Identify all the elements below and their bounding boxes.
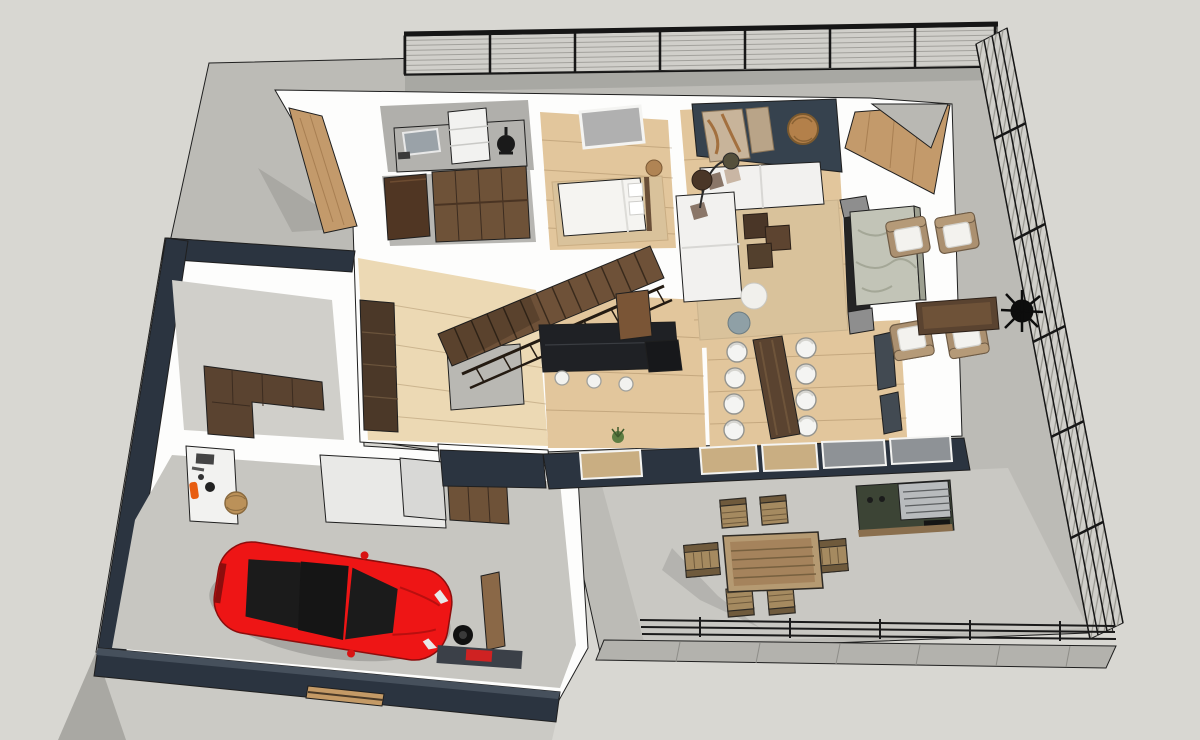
dining-chair[interactable] (796, 364, 816, 384)
lounge-chair[interactable] (934, 212, 980, 254)
bar-stool[interactable] (555, 371, 569, 385)
refrigerator[interactable] (400, 458, 446, 520)
outdoor-dining-chair[interactable] (760, 495, 788, 525)
east-window (880, 392, 902, 434)
facade-door[interactable] (580, 450, 642, 479)
pillow (628, 183, 643, 197)
wall-clock[interactable] (497, 135, 515, 153)
open-door[interactable] (616, 290, 652, 340)
dining-chair[interactable] (724, 394, 744, 414)
mirror[interactable] (403, 129, 440, 155)
side-table[interactable] (646, 160, 662, 176)
washer-cabinet[interactable] (448, 108, 490, 164)
floorplan-3d-scene[interactable] (0, 0, 1200, 740)
outdoor-dining-armchair[interactable] (684, 543, 721, 578)
bar-stool[interactable] (587, 374, 601, 388)
outdoor-dining-table[interactable] (723, 532, 823, 592)
pillow (629, 201, 644, 215)
double-bed[interactable] (558, 177, 652, 236)
pouf-gray[interactable] (728, 312, 750, 334)
mudroom-floor (172, 280, 344, 440)
round-side-table[interactable] (692, 170, 712, 190)
bedroom-window (580, 106, 644, 148)
wall-art[interactable] (702, 109, 750, 162)
facade-glass (822, 440, 886, 468)
dining-chair[interactable] (724, 420, 744, 440)
pouf-white[interactable] (741, 283, 767, 309)
dining-chair[interactable] (725, 368, 745, 388)
facade-glass (700, 445, 758, 474)
closet-door[interactable] (384, 174, 430, 240)
tall-appliance[interactable] (645, 340, 682, 372)
render-viewport[interactable]: { "scene": { "type": "3d-floorplan-rende… (0, 0, 1200, 740)
facade-glass (890, 436, 952, 464)
bbq-grill[interactable] (856, 480, 954, 537)
facade-glass (762, 443, 818, 471)
lounge-chair[interactable] (885, 216, 931, 258)
dining-chair[interactable] (727, 342, 747, 362)
slat-fence-top (404, 24, 998, 75)
counter-item (398, 152, 410, 160)
dining-chair[interactable] (796, 338, 816, 358)
living-room (676, 99, 848, 340)
toolbox[interactable] (466, 649, 493, 662)
bar-stool[interactable] (619, 377, 633, 391)
outdoor-dining-chair[interactable] (720, 498, 748, 528)
round-wood-decor[interactable] (788, 114, 818, 144)
dining-chair[interactable] (796, 390, 816, 410)
walk-in-closet (384, 166, 530, 242)
